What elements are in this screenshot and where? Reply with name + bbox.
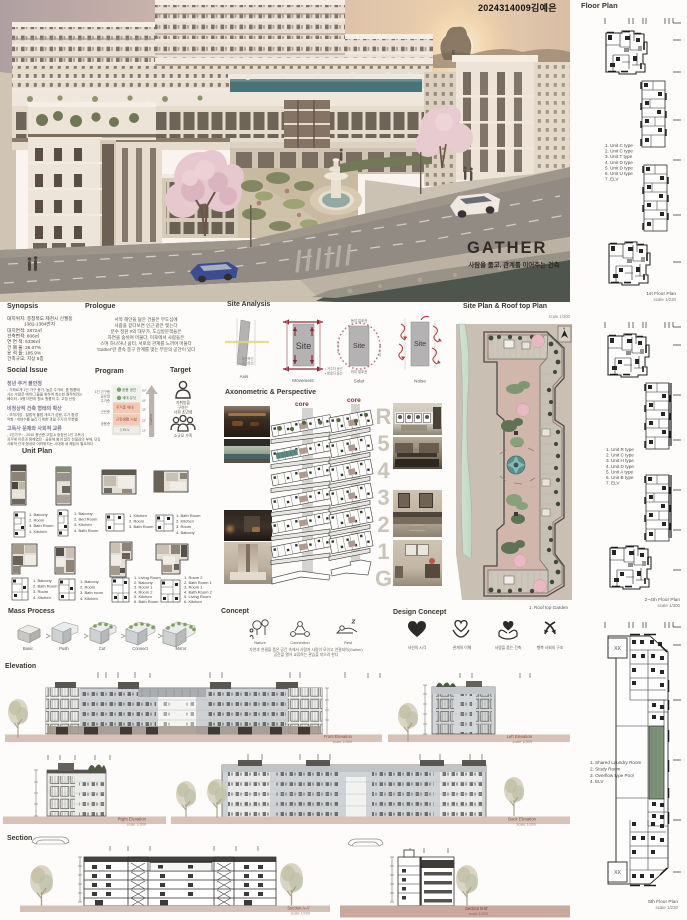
svg-text:2. Room: 2. Room [29,518,45,523]
svg-text:Movement: Movement [292,378,314,383]
svg-text:6. Bath Room: 6. Bath Room [134,599,159,604]
svg-text:주거층: 주거층 [101,398,110,403]
svg-text:1F: 1F [142,429,146,433]
svg-text:6. Kitchen: 6. Kitchen [184,599,202,604]
svg-text:2. Room: 2. Room [129,519,145,524]
svg-text:스며 하나하나 쉼터, 서로의 관계를 느끼며 머물다: 스며 하나하나 쉼터, 서로의 관계를 느끼며 머물다 [100,340,192,347]
svg-text:3. Room: 3. Room [176,524,192,529]
svg-text:1. Balcony: 1. Balcony [29,512,48,517]
svg-text:공용층: 공용층 [101,421,110,426]
svg-text:Mirror: Mirror [176,646,188,651]
svg-text:Nature: Nature [254,641,265,645]
svg-text:Basic: Basic [23,646,33,651]
svg-text:근린층: 근린층 [101,409,110,414]
svg-text:3F: 3F [142,408,146,412]
svg-text:공용 공간: 공용 공간 [122,387,137,392]
svg-text:RF: RF [142,389,147,393]
svg-text:1. Shared Laundry Room: 1. Shared Laundry Room [590,760,642,765]
svg-text:3. Unit T type: 3. Unit T type [605,154,633,159]
svg-text:6. Unit B type: 6. Unit B type [606,475,634,480]
svg-text:동지 일조권: 동지 일조권 [351,318,368,323]
svg-text:- 쪼개기방 - 탈법적 불법 개조가 성행, 주거 환경: - 쪼개기방 - 탈법적 불법 개조가 성행, 주거 환경 [7,412,78,417]
svg-text:Site: Site [353,343,365,350]
svg-text:scale 1/200: scale 1/200 [291,912,310,916]
svg-text:Section A-A': Section A-A' [287,906,310,911]
svg-text:과거에 이웃과 함께였던 - 공동체 붕괴 널리 친밀감의: 과거에 이웃과 함께였던 - 공동체 붕괴 널리 친밀감의 부재, 단절. [7,437,100,442]
svg-text:5. Unit A type: 5. Unit A type [606,469,634,474]
svg-text:7. ELV: 7. ELV [606,481,620,486]
svg-text:사람을 걷다보면 인근 같은 맺는다: 사람을 걷다보면 인근 같은 맺는다 [115,322,179,329]
svg-text:1. Balcony: 1. Balcony [33,578,52,583]
svg-text:scale 1/300: scale 1/300 [127,823,146,827]
svg-text:Axis: Axis [240,374,249,379]
svg-text:core: core [295,401,309,408]
svg-text:Solar: Solar [354,379,365,384]
svg-text:청년 주거 불안정: 청년 주거 불안정 [7,380,42,387]
svg-text:비정상적 건축 형태의 확산: 비정상적 건축 형태의 확산 [7,405,62,412]
svg-text:▪ 거주자 동선: ▪ 거주자 동선 [325,366,343,371]
svg-text:2. Kitchen: 2. Kitchen [176,519,194,524]
svg-text:scale 1/300: scale 1/300 [513,740,532,744]
svg-text:XX: XX [614,870,621,876]
svg-text:사회적 관계 형성이 어려워지는 시대에 새 해답이 필요하: 사회적 관계 형성이 어려워지는 시대에 새 해답이 필요하다 [7,441,94,446]
svg-text:4. Kitchen: 4. Kitchen [80,596,98,601]
svg-text:2. Room: 2. Room [80,585,96,590]
svg-text:사는 수많은 예비/그들을 위하여 최소한 쾌적하려는: 사는 수많은 예비/그들을 위하여 최소한 쾌적하려는 [7,392,83,397]
svg-text:베이터 - 5평 미만의 협소 원룸의 주, 고립 난망: 베이터 - 5평 미만의 협소 원룸의 주, 고립 난망 [7,396,76,401]
svg-text:4. ELV: 4. ELV [590,779,604,784]
svg-text:4. Unit D type: 4. Unit D type [606,464,634,469]
svg-text:1382-1384번지: 1382-1384번지 [24,321,55,328]
svg-text:2. Unit C type: 2. Unit C type [605,149,633,154]
svg-text:scale 1/300: scale 1/300 [517,823,536,827]
svg-text:- 가파르게 1인 가구 증가, 높은 주거비, 좁 원룸에: - 가파르게 1인 가구 증가, 높은 주거비, 좁 원룸에 [7,387,80,392]
svg-text:1. Balcony: 1. Balcony [80,579,99,584]
svg-text:공간을 열어 교류하는 관습을 지으려 한다: 공간을 열어 교류하는 관습을 지으려 한다 [274,652,339,657]
svg-text:4. Balcony: 4. Balcony [176,530,195,535]
svg-text:scale 1/230: scale 1/230 [654,297,677,302]
svg-text:● 횡단축선: ● 횡단축선 [239,356,254,361]
svg-text:3. Kitchen: 3. Kitchen [74,522,92,527]
svg-text:4. Unit D type: 4. Unit D type [605,160,633,165]
svg-text:scale 1/300: scale 1/300 [333,740,352,744]
svg-text:1. Unit C type: 1. Unit C type [605,143,633,148]
svg-text:Floor Plan: Floor Plan [581,1,618,10]
svg-text:3. Bath Room: 3. Bath Room [29,523,54,528]
svg-text:2. Bath Room: 2. Bath Room [33,584,58,589]
svg-text:1. Roof top Garden: 1. Roof top Garden [529,605,569,610]
svg-text:서쪽 해안을 닮은 건물은 부도심에: 서쪽 해안을 닮은 건물은 부도심에 [115,316,178,323]
svg-text:scale 1/300: scale 1/300 [658,603,681,608]
svg-text:근린생활 시설: 근린생활 시설 [116,416,137,421]
svg-text:N: N [563,327,565,331]
svg-text:3. Room: 3. Room [33,589,49,594]
svg-text:Right Elevation: Right Elevation [118,817,147,822]
svg-text:7. ELV: 7. ELV [605,177,619,182]
svg-text:Cut: Cut [99,646,106,651]
svg-text:XX: XX [614,646,621,652]
svg-text:1. Kitchen: 1. Kitchen [129,513,147,518]
svg-text:1인 가구용: 1인 가구용 [95,389,110,394]
svg-text:5. Unit D type: 5. Unit D type [605,165,633,170]
svg-text:Front Elevation: Front Elevation [324,734,353,739]
svg-text:1. Bath Room: 1. Bath Room [176,513,201,518]
svg-text:scale 1/230: scale 1/230 [656,905,679,910]
svg-text:자연을 숨쉬며 머물다, 미로에서 사람들은: 자연을 숨쉬며 머물다, 미로에서 사람들은 [108,334,185,341]
svg-text:Left Elevation: Left Elevation [507,734,533,739]
svg-text:Site: Site [414,341,426,348]
svg-text:- 1인가구↑ - 2030 청년층 고립 & 중장년 1인: - 1인가구↑ - 2030 청년층 고립 & 중장년 1인 고독사 [7,432,85,437]
svg-text:scale 1/200: scale 1/200 [469,912,488,916]
svg-text:세대 유닛: 세대 유닛 [122,395,137,400]
svg-text:1. Balcony: 1. Balcony [74,511,93,516]
svg-text:하지 일조권: 하지 일조권 [351,369,368,374]
svg-text:Push: Push [59,646,69,651]
svg-text:Section B-B': Section B-B' [465,906,488,911]
svg-text:2. Study Room: 2. Study Room [590,766,621,771]
svg-text:사선의 시각: 사선의 시각 [408,645,427,650]
svg-text:scale 1/300: scale 1/300 [549,314,571,319]
svg-text:AM 9:00: AM 9:00 [336,342,340,354]
svg-text:● 종단축선: ● 종단축선 [239,361,254,366]
svg-text:2F: 2F [142,419,146,423]
svg-text:자연과 연결을 품은 공간 속에서 사람과 사람이 모이고: 자연과 연결을 품은 공간 속에서 사람과 사람이 모이고 연결되어(Gathe… [249,647,363,652]
svg-text:6. Unit U type: 6. Unit U type [605,171,633,176]
svg-text:Gather: Gather [149,413,153,425]
svg-text:1. Unit R type: 1. Unit R type [606,447,634,452]
svg-text:소규모 가족: 소규모 가족 [174,433,193,438]
svg-text:악화 / 세대수를 늘리기 위한 과밀 주거의 무분별: 악화 / 세대수를 늘리기 위한 과밀 주거의 무분별 [7,417,78,422]
svg-text:3. Bath room: 3. Bath room [80,590,104,595]
svg-text:Connect: Connect [132,646,148,651]
svg-text:구하는: 구하는 [178,405,189,410]
svg-text:4. Kitchen: 4. Kitchen [29,529,47,534]
svg-text:Site: Site [296,341,312,351]
svg-text:PM 15:00: PM 15:00 [378,344,382,357]
svg-text:'Gather'란 결속 중구 관계를 맺는 부문의 공간이: 'Gather'란 결속 중구 관계를 맺는 부문의 공간이 있다 [97,346,197,353]
svg-text:▪ 방문자 동선: ▪ 방문자 동선 [325,371,343,376]
svg-text:주거층 세대: 주거층 세대 [116,405,134,410]
svg-text:Connection: Connection [290,641,309,645]
svg-text:사회 초년생: 사회 초년생 [174,410,193,415]
svg-text:자취방을: 자취방을 [176,400,190,405]
svg-text:사람을 품는 건축: 사람을 품는 건축 [495,645,522,650]
svg-text:분수 정원 #의 대우가, 도심방문객들은: 분수 정원 #의 대우가, 도심방문객들은 [111,328,182,335]
svg-text:4. Bath Room: 4. Bath Room [74,528,99,533]
svg-text:행복 사회의 구조: 행복 사회의 구조 [537,645,564,650]
svg-text:4F: 4F [142,399,146,403]
svg-text:2. Bed Room: 2. Bed Room [74,517,98,522]
svg-text:관계의 이해: 관계의 이해 [453,645,472,650]
svg-text:4. Kitchen: 4. Kitchen [33,595,51,600]
svg-text:고독사 문제와 사회적 교류: 고독사 문제와 사회적 교류 [7,425,62,432]
svg-text:2. Unit C type: 2. Unit C type [606,453,634,458]
svg-text:Noise: Noise [414,379,426,384]
svg-text:3. Unit H type: 3. Unit H type [606,458,634,463]
svg-text:core: core [347,397,361,404]
svg-text:3. Overflow type Pool: 3. Overflow type Pool [590,773,634,778]
svg-text:▯ ELV: ▯ ELV [120,428,130,432]
svg-text:Back Elevation: Back Elevation [508,817,536,822]
svg-text:공유형: 공유형 [101,394,110,399]
svg-text:건축규모: 지상 5층: 건축규모: 지상 5층 [7,355,44,362]
svg-text:Rest: Rest [344,641,353,645]
svg-text:3. Bath Room: 3. Bath Room [129,524,154,529]
